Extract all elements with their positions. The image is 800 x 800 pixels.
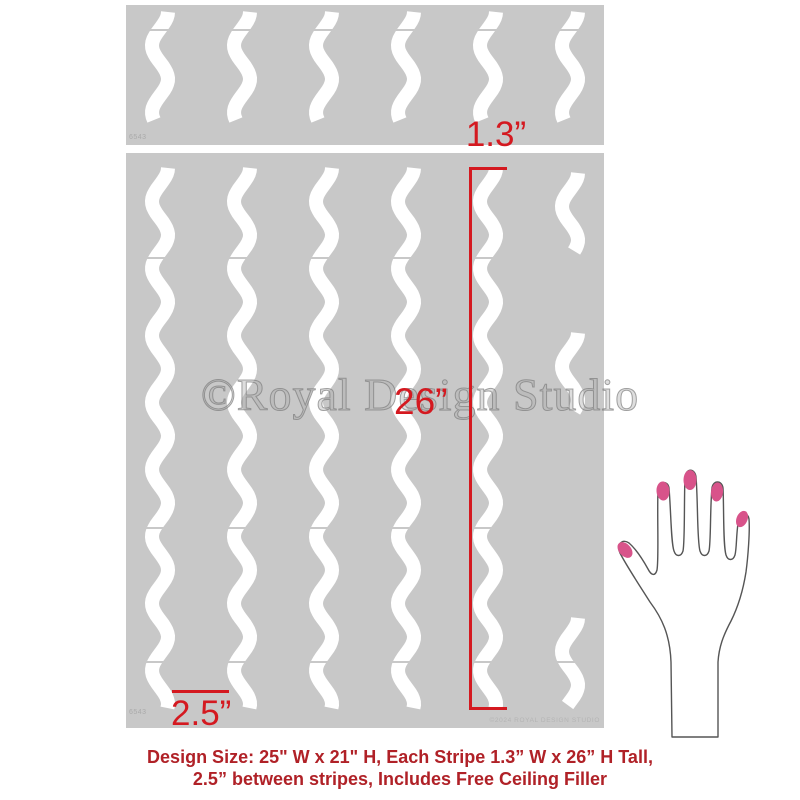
sheet-code-label: 6543: [129, 134, 147, 141]
stencil-seam-line: [126, 527, 604, 529]
stencil-stripe: [562, 12, 578, 120]
dimension-tick-top: [469, 167, 507, 170]
stencil-stripe: [480, 12, 496, 120]
copyright-imprint: ©2024 ROYAL DESIGN STUDIO: [420, 718, 600, 725]
main-stencil-panel: 6543 ©2024 ROYAL DESIGN STUDIO: [126, 153, 604, 728]
stencil-stripe: [152, 168, 168, 708]
painted-nails: [615, 470, 751, 561]
stencil-stripe: [398, 168, 414, 708]
stencil-stripe: [398, 12, 414, 120]
stencil-seam-line: [126, 257, 604, 259]
hand-icon: [610, 455, 770, 740]
stencil-stripe: [234, 12, 250, 120]
stencil-seam-line: [126, 661, 604, 663]
product-image: 6543 6543 ©2024 ROYAL DESIGN STUDIO ©Roy…: [0, 0, 800, 800]
stencil-stripe: [316, 168, 332, 708]
stencil-stripe: [480, 168, 496, 708]
hand-scale-illustration: [610, 455, 770, 740]
height-dimension-line: [469, 167, 472, 710]
stripe-height-dimension-label: 26”: [394, 383, 454, 420]
hand-outline: [619, 470, 750, 737]
stencil-stripe: [562, 173, 578, 251]
sheet-code-label: 6543: [129, 709, 147, 716]
stencil-stripe: [234, 168, 250, 708]
caption-line-2: 2.5” between stripes, Includes Free Ceil…: [0, 768, 800, 790]
dimension-tick-bottom: [469, 707, 507, 710]
stencil-stripe: [152, 12, 168, 120]
stripe-gap-dimension-label: 2.5”: [171, 696, 251, 731]
main-stencil-stripes-graphic: [126, 153, 604, 728]
stencil-stripe: [562, 333, 578, 411]
gap-dimension-line: [172, 690, 229, 693]
stripe-width-dimension-label: 1.3”: [448, 117, 544, 152]
caption-line-1: Design Size: 25" W x 21" H, Each Stripe …: [0, 746, 800, 768]
design-size-caption: Design Size: 25" W x 21" H, Each Stripe …: [0, 746, 800, 790]
stencil-seam-line: [126, 29, 604, 31]
stencil-stripe: [316, 12, 332, 120]
